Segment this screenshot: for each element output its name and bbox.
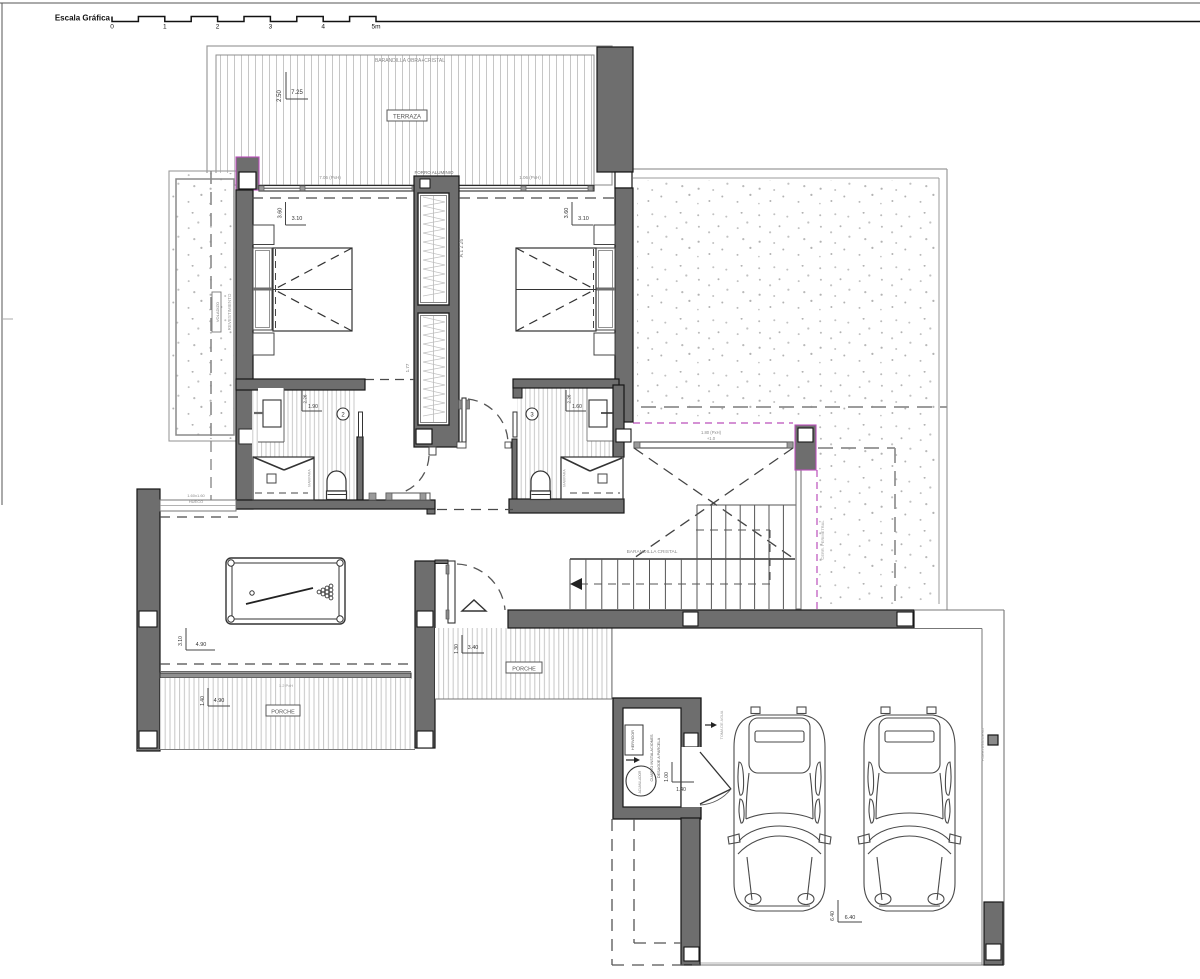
svg-text:+1.0: +1.0	[707, 436, 716, 441]
svg-text:2.26: 2.26	[303, 394, 308, 403]
svg-text:4: 4	[321, 24, 325, 31]
svg-text:3.60: 3.60	[564, 208, 570, 219]
svg-text:HUECO: HUECO	[189, 499, 203, 504]
svg-text:3.10: 3.10	[578, 216, 589, 222]
svg-text:MAMPARA: MAMPARA	[308, 469, 312, 487]
svg-text:1.60: 1.60	[572, 404, 582, 410]
svg-text:ACUMULADOR: ACUMULADOR	[638, 770, 642, 793]
svg-text:7.06 (PxH): 7.06 (PxH)	[319, 175, 341, 180]
svg-text:TERRAZA: TERRAZA	[393, 115, 421, 121]
svg-text:1: 1	[163, 24, 167, 31]
svg-text:BARANDILLA CRISTAL: BARANDILLA CRISTAL	[627, 549, 678, 555]
svg-text:6.40: 6.40	[845, 915, 856, 921]
svg-text:0: 0	[110, 24, 114, 31]
svg-text:1.80 (PxH): 1.80 (PxH)	[701, 430, 722, 435]
svg-text:CERR. PERIMETRAL: CERR. PERIMETRAL	[820, 520, 825, 560]
svg-text:2: 2	[216, 24, 220, 31]
svg-text:1.77: 1.77	[405, 363, 410, 372]
svg-text:1.90: 1.90	[308, 404, 318, 410]
svg-text:3.10: 3.10	[292, 216, 303, 222]
svg-text:DESAGÜE A PARCELA: DESAGÜE A PARCELA	[657, 737, 661, 778]
svg-text:1.40: 1.40	[676, 787, 686, 793]
svg-text:PORCHE: PORCHE	[271, 710, 295, 716]
svg-text:4.90: 4.90	[196, 642, 207, 648]
svg-text:REVESTIMIENTO: REVESTIMIENTO	[227, 293, 232, 330]
svg-text:1.00: 1.00	[664, 772, 670, 782]
svg-text:1.2 PxH: 1.2 PxH	[279, 683, 293, 688]
svg-text:2.26: 2.26	[567, 394, 572, 403]
svg-text:VOLADIZO: VOLADIZO	[215, 302, 220, 322]
svg-text:PUERTA ACCESO: PUERTA ACCESO	[980, 728, 985, 761]
svg-text:1.06 (PxH): 1.06 (PxH)	[519, 175, 541, 180]
svg-text:A.1 2.26: A.1 2.26	[459, 238, 465, 257]
svg-text:BARANDILLA OBRA+CRISTAL: BARANDILLA OBRA+CRISTAL	[375, 58, 445, 64]
svg-text:7.25: 7.25	[291, 90, 303, 96]
svg-text:1.30: 1.30	[454, 644, 460, 654]
svg-text:FORRO ALUMINIO: FORRO ALUMINIO	[414, 170, 454, 175]
svg-text:4.90: 4.90	[214, 698, 225, 704]
svg-text:3: 3	[269, 24, 273, 31]
svg-text:CUARTO INSTALACIONES: CUARTO INSTALACIONES	[650, 734, 654, 782]
svg-text:2.50: 2.50	[277, 90, 283, 102]
svg-text:5m: 5m	[371, 24, 380, 31]
svg-text:6.40: 6.40	[830, 911, 836, 921]
svg-text:3.40: 3.40	[468, 645, 479, 651]
svg-text:3.60: 3.60	[278, 208, 284, 219]
svg-text:1.40: 1.40	[200, 696, 206, 706]
svg-text:TOMA DE AGUA: TOMA DE AGUA	[720, 710, 724, 739]
svg-text:3.10: 3.10	[178, 636, 184, 646]
svg-text:MAMPARA: MAMPARA	[563, 469, 567, 487]
svg-text:HERVIDOR: HERVIDOR	[631, 730, 635, 750]
svg-text:PORCHE: PORCHE	[512, 667, 536, 673]
svg-text:Escala Gráfica: Escala Gráfica	[55, 14, 111, 23]
svg-text:1.60x1.60: 1.60x1.60	[187, 493, 205, 498]
